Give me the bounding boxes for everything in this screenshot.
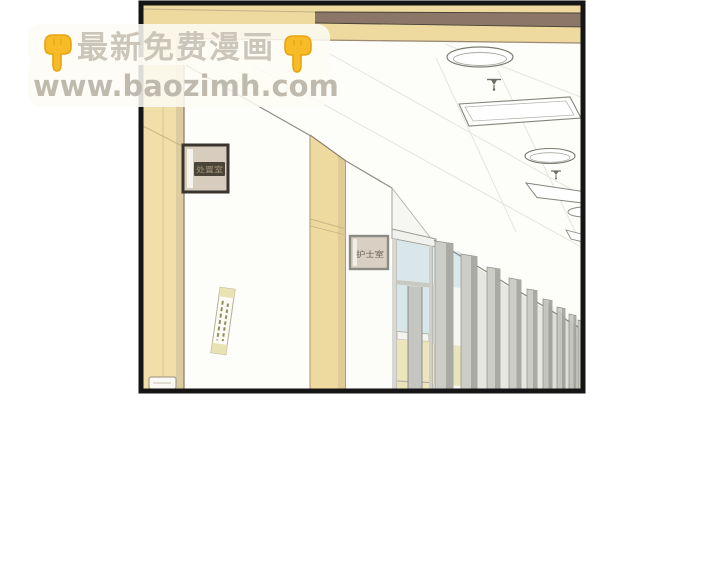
round-ceiling-light: [447, 47, 513, 67]
door-sign-2: 护士室: [350, 236, 388, 269]
door-sign-1-label: 处置室: [196, 165, 223, 175]
round-ceiling-light: [525, 149, 575, 164]
watermark-title: 最新免费漫画: [77, 31, 275, 65]
door-sign-2-label: 护士室: [356, 249, 384, 259]
nurse-station-wall: [346, 161, 392, 391]
watermark-url: www.baozimh.com: [33, 69, 339, 103]
window-mullion: [408, 286, 422, 391]
point-down-icon: [280, 32, 314, 74]
point-down-icon: [40, 31, 74, 73]
door-sign-1: 处置室: [183, 145, 228, 192]
center-wood-pillar: [310, 135, 346, 391]
comic-reader-page: 处置室 护士室: [0, 0, 720, 563]
watermark: 最新免费漫画 www.baozimh.com: [28, 24, 330, 108]
